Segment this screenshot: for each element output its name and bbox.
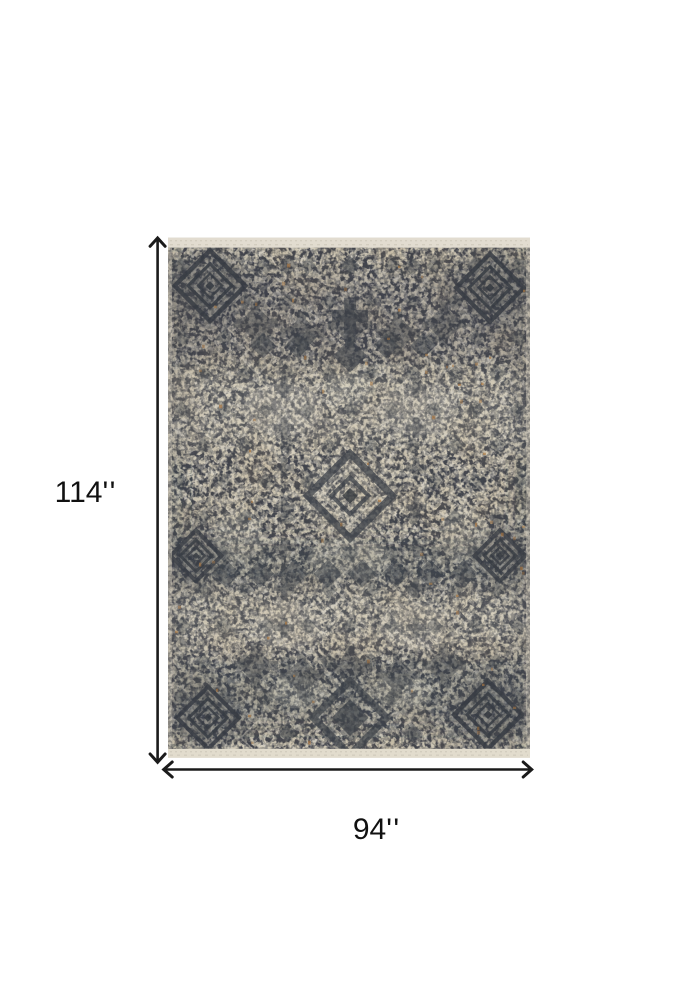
svg-text:114'': 114'' (55, 476, 116, 509)
